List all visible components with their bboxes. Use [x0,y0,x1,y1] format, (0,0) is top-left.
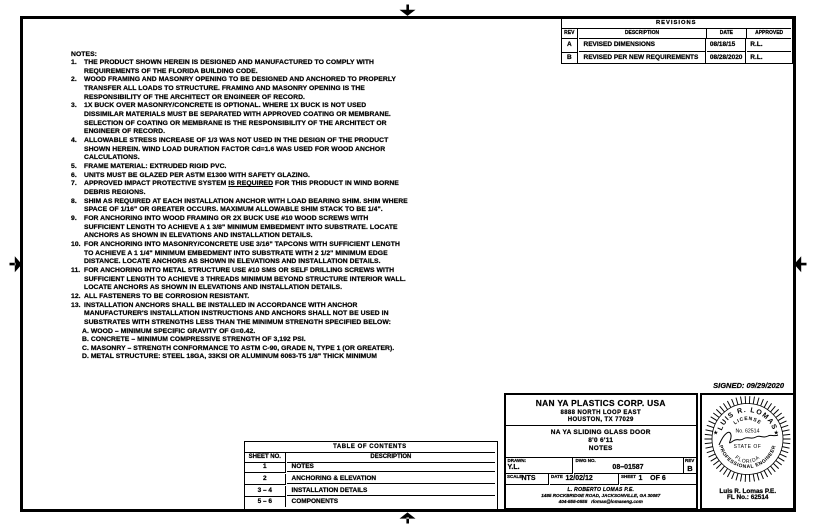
svg-text:LICENSE: LICENSE [733,415,763,425]
svg-text:STATE OF: STATE OF [734,444,762,450]
svg-text:★: ★ [713,429,718,436]
svg-text:No. 62514: No. 62514 [736,428,760,434]
